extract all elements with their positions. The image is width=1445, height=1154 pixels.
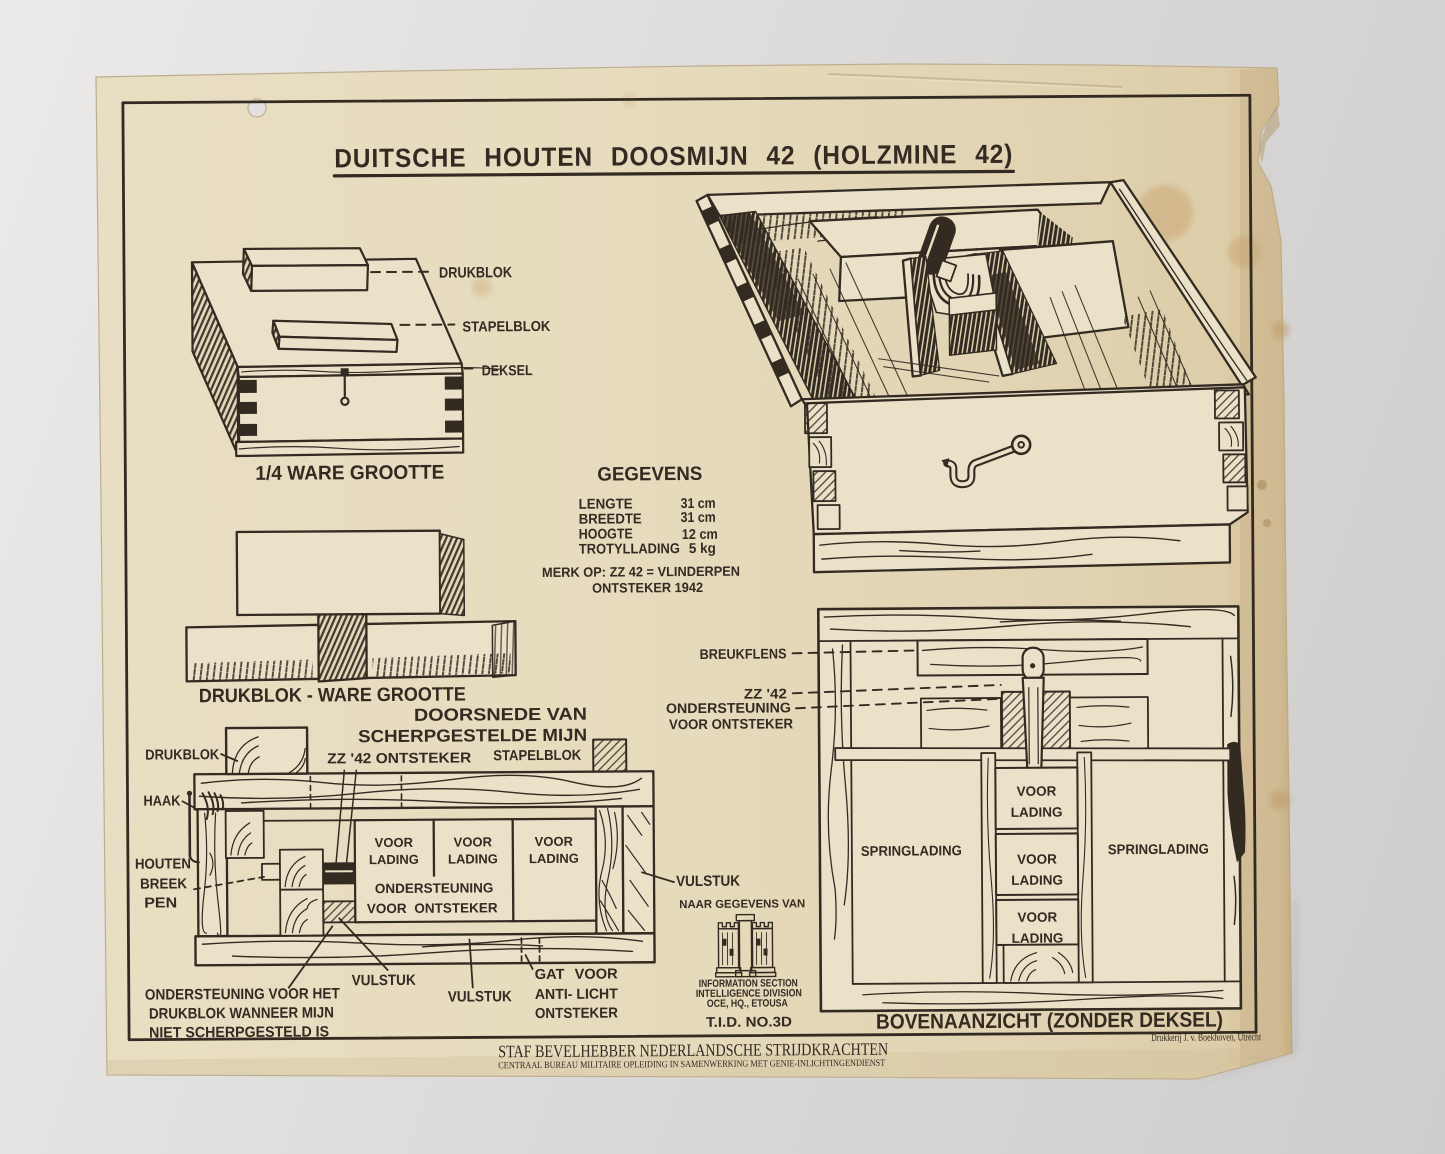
svg-text:VULSTUK: VULSTUK bbox=[448, 988, 512, 1005]
svg-text:VOOR: VOOR bbox=[454, 834, 493, 849]
svg-text:NAAR GEGEVENS VAN: NAAR GEGEVENS VAN bbox=[679, 898, 805, 911]
svg-text:VOOR: VOOR bbox=[1017, 910, 1057, 925]
svg-text:GAT VOOR: GAT VOOR bbox=[535, 966, 619, 983]
svg-text:Drukkerij J. v. Boekhoven, Utr: Drukkerij J. v. Boekhoven, Utrecht bbox=[1151, 1032, 1261, 1044]
svg-text:ZZ '42 ONTSTEKER: ZZ '42 ONTSTEKER bbox=[327, 750, 472, 767]
svg-text:1/4 WARE GROOTTE: 1/4 WARE GROOTTE bbox=[255, 462, 444, 485]
svg-text:HOUTEN: HOUTEN bbox=[135, 856, 191, 872]
svg-text:MERK OP: ZZ 42 = VLINDERPEN: MERK OP: ZZ 42 = VLINDERPEN bbox=[542, 564, 740, 580]
svg-text:5 kg: 5 kg bbox=[689, 541, 716, 557]
svg-text:BREEDTE: BREEDTE bbox=[579, 511, 642, 527]
svg-text:BREEK: BREEK bbox=[140, 876, 188, 892]
svg-text:SPRINGLADING: SPRINGLADING bbox=[861, 842, 962, 859]
svg-text:STAPELBLOK: STAPELBLOK bbox=[493, 748, 582, 765]
svg-text:DOORSNEDE VAN: DOORSNEDE VAN bbox=[414, 704, 587, 725]
svg-text:ONDERSTEUNING VOOR HET: ONDERSTEUNING VOOR HET bbox=[145, 985, 340, 1003]
svg-text:ANTI- LICHT: ANTI- LICHT bbox=[535, 986, 618, 1003]
svg-text:BREUKFLENS: BREUKFLENS bbox=[700, 645, 787, 662]
svg-text:ONDERSTEUNING: ONDERSTEUNING bbox=[375, 880, 494, 896]
svg-text:HOOGTE: HOOGTE bbox=[579, 526, 633, 542]
svg-text:VULSTUK: VULSTUK bbox=[352, 972, 416, 989]
svg-text:T.I.D. NO.3D: T.I.D. NO.3D bbox=[706, 1013, 792, 1030]
svg-text:ONTSTEKER 1942: ONTSTEKER 1942 bbox=[592, 580, 703, 596]
svg-text:VOOR: VOOR bbox=[535, 834, 574, 849]
svg-text:ONTSTEKER: ONTSTEKER bbox=[535, 1005, 619, 1022]
svg-text:VOOR ONTSTEKER: VOOR ONTSTEKER bbox=[669, 715, 793, 732]
svg-text:LADING: LADING bbox=[369, 852, 419, 867]
svg-text:LADING: LADING bbox=[1011, 805, 1063, 820]
svg-text:SPRINGLADING: SPRINGLADING bbox=[1108, 841, 1209, 858]
svg-text:VOOR: VOOR bbox=[1017, 852, 1057, 867]
svg-text:LADING: LADING bbox=[1012, 931, 1064, 946]
svg-text:DRUKBLOK: DRUKBLOK bbox=[439, 264, 512, 281]
svg-text:VULSTUK: VULSTUK bbox=[676, 873, 740, 890]
svg-text:31 cm: 31 cm bbox=[681, 510, 716, 526]
svg-text:LADING: LADING bbox=[1011, 873, 1063, 888]
svg-text:DRUKBLOK: DRUKBLOK bbox=[145, 747, 220, 763]
svg-text:ONDERSTEUNING: ONDERSTEUNING bbox=[666, 699, 791, 716]
svg-text:LADING: LADING bbox=[529, 851, 579, 866]
svg-text:DEKSEL: DEKSEL bbox=[482, 363, 533, 379]
svg-text:BOVENAANZICHT (ZONDER DEKSEL): BOVENAANZICHT (ZONDER DEKSEL) bbox=[876, 1008, 1223, 1033]
svg-text:GEGEVENS: GEGEVENS bbox=[597, 463, 702, 486]
svg-text:STAF BEVELHEBBER NEDERLANDSCHE: STAF BEVELHEBBER NEDERLANDSCHE STRIJDKRA… bbox=[498, 1039, 888, 1062]
svg-text:SCHERPGESTELDE MIJN: SCHERPGESTELDE MIJN bbox=[358, 725, 587, 747]
svg-text:NIET SCHERPGESTELD IS: NIET SCHERPGESTELD IS bbox=[149, 1023, 329, 1041]
svg-text:LENGTE: LENGTE bbox=[579, 496, 633, 512]
svg-text:VOOR ONTSTEKER: VOOR ONTSTEKER bbox=[367, 900, 498, 916]
svg-text:OCE, HQ., ETOUSA: OCE, HQ., ETOUSA bbox=[707, 997, 788, 1010]
svg-text:DRUKBLOK WANNEER MIJN: DRUKBLOK WANNEER MIJN bbox=[149, 1004, 334, 1022]
svg-text:STAPELBLOK: STAPELBLOK bbox=[462, 319, 551, 336]
svg-text:DUITSCHE HOUTEN DOOSMIJN 42 (H: DUITSCHE HOUTEN DOOSMIJN 42 (HOLZMINE 42… bbox=[334, 139, 1013, 174]
svg-text:PEN: PEN bbox=[144, 895, 177, 911]
svg-text:DRUKBLOK - WARE GROOTTE: DRUKBLOK - WARE GROOTTE bbox=[199, 683, 466, 707]
svg-text:LADING: LADING bbox=[448, 851, 498, 866]
svg-text:VOOR: VOOR bbox=[1017, 784, 1057, 799]
svg-text:TROTYLLADING: TROTYLLADING bbox=[579, 541, 680, 558]
svg-text:VOOR: VOOR bbox=[375, 835, 414, 850]
svg-text:HAAK: HAAK bbox=[143, 793, 181, 809]
